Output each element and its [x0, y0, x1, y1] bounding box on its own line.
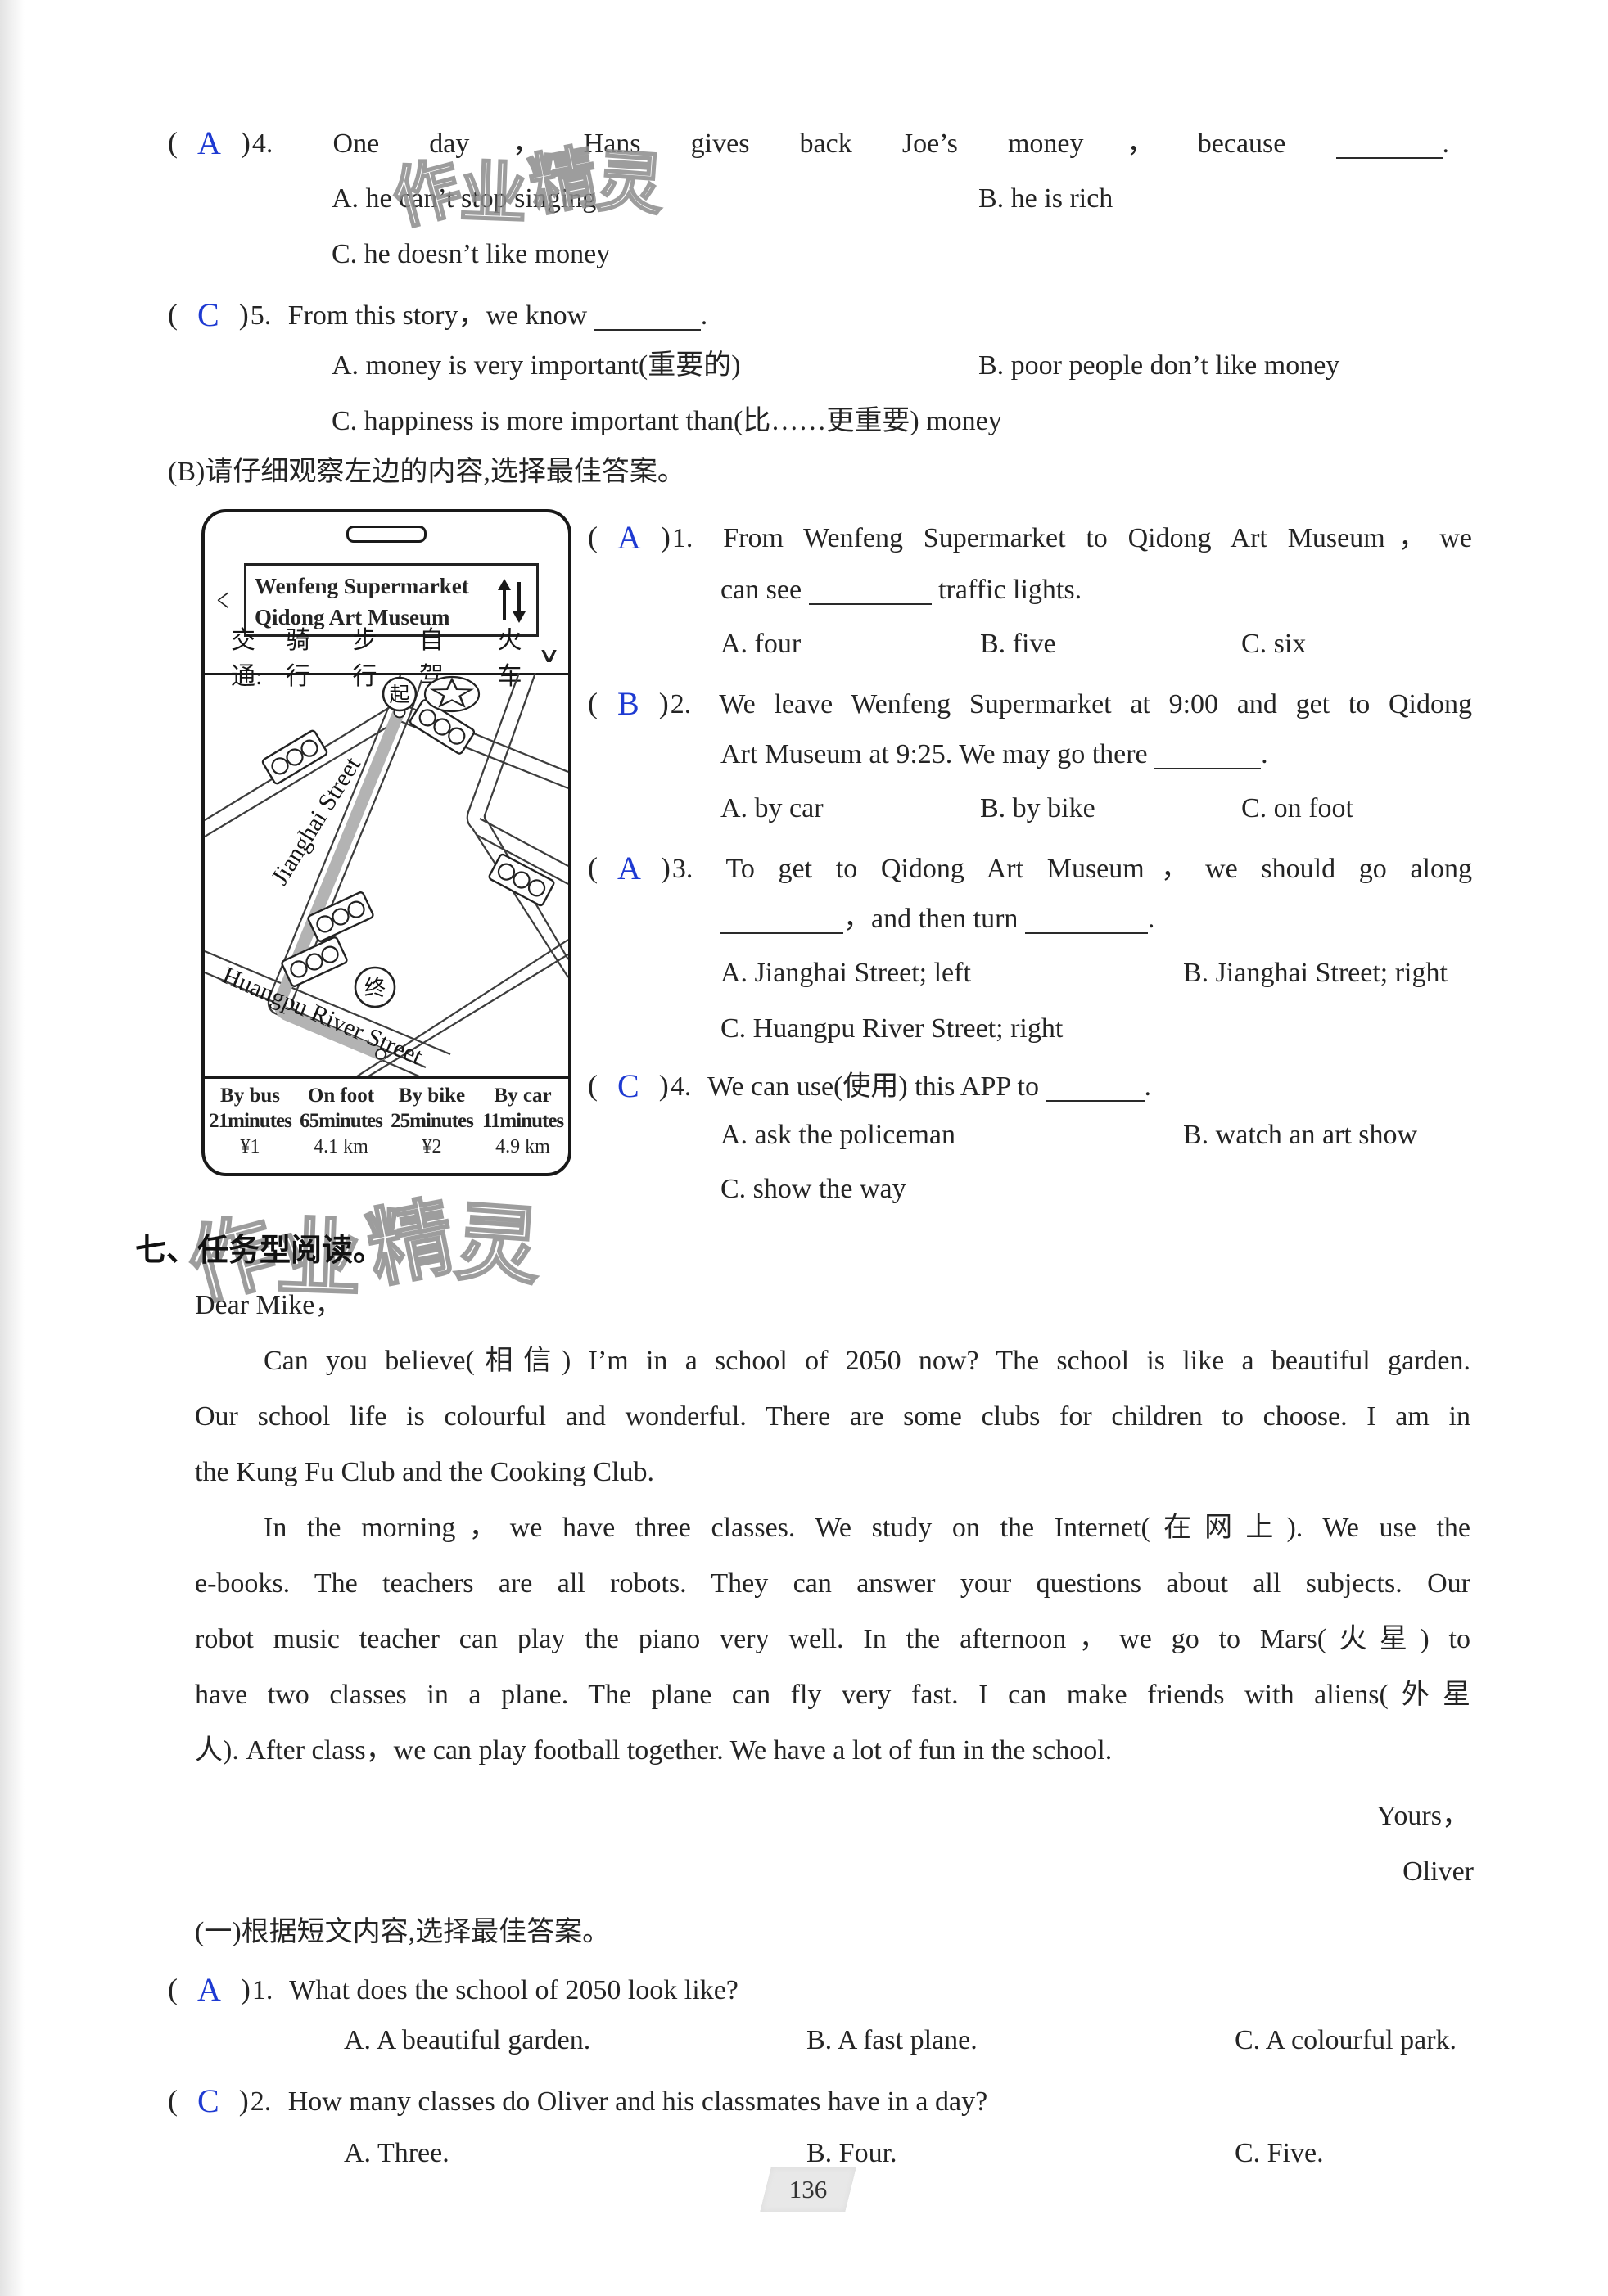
answer-letter: C — [197, 296, 219, 333]
answer-letter: B — [617, 685, 639, 722]
letter-line: Our school life is colourful and wonderf… — [195, 1400, 1470, 1435]
answer-blank — [1046, 1071, 1145, 1102]
letter-line: robot music teacher can play the piano v… — [195, 1622, 1470, 1658]
svg-text:起: 起 — [389, 683, 409, 706]
col-extra: ¥1 — [205, 1136, 296, 1158]
paren-open: ( — [168, 1973, 178, 2005]
option: A. A beautiful garden. — [344, 2023, 590, 2059]
option: C. show the way — [720, 1172, 906, 1207]
question-a5: (C)5. From this story，we know . — [168, 293, 707, 334]
section-7-heading: 七、任务型阅读。 — [135, 1225, 384, 1270]
stem-part: traffic lights. — [938, 575, 1082, 605]
destination-star-icon — [425, 677, 479, 711]
option: A. by car — [720, 792, 824, 827]
swap-route-icon — [494, 575, 530, 626]
option: C. Huangpu River Street; right — [720, 1012, 1063, 1047]
answer-blank — [809, 574, 932, 605]
stem-part: ，and then turn — [843, 904, 1018, 934]
stem-tail: . — [1145, 1071, 1152, 1102]
option: A. four — [720, 627, 801, 662]
question-number: 1. — [672, 523, 693, 553]
table-col-bus: By bus 21minutes ¥1 — [205, 1079, 296, 1175]
stem-tail: . — [1443, 129, 1450, 159]
option: C. A colourful park. — [1235, 2023, 1457, 2059]
col-time: 65minutes — [296, 1110, 386, 1133]
answer-letter: C — [197, 2082, 219, 2119]
question-number: 5. — [251, 300, 272, 331]
start-marker: 起 — [383, 678, 416, 710]
question-number: 2. — [251, 2086, 272, 2117]
question-stem: From Wenfeng Supermarket to Qidong Art M… — [723, 523, 1472, 553]
question-number: 3. — [672, 854, 693, 884]
transport-row: 交通: 骑行 步行 自驾 火车 ∨ — [231, 640, 557, 671]
question-b2-line2: Art Museum at 9:25. We may go there . — [720, 738, 1268, 773]
letter-line: 人). After class，we can play football tog… — [195, 1734, 1112, 1769]
paren-open: ( — [588, 687, 598, 719]
phone-speaker — [346, 526, 427, 543]
answer-letter: C — [617, 1067, 639, 1104]
answer-blank — [720, 903, 843, 934]
letter-line: Can you believe(相信) I’m in a school of 2… — [195, 1344, 1470, 1379]
question-7-2: (C)2. How many classes do Oliver and his… — [168, 2079, 987, 2120]
question-number: 4. — [252, 129, 273, 159]
paren-open: ( — [588, 521, 598, 553]
answer-letter: A — [617, 519, 641, 556]
col-header: By car — [477, 1085, 568, 1107]
table-col-car: By car 11minutes 4.9 km — [477, 1079, 568, 1175]
svg-text:终: 终 — [364, 977, 386, 1000]
table-col-foot: On foot 65minutes 4.1 km — [296, 1079, 386, 1175]
letter-line: e-books. The teachers are all robots. Th… — [195, 1567, 1470, 1602]
col-header: By bike — [386, 1085, 477, 1107]
traffic-light — [262, 729, 328, 784]
question-stem: From this story，we know — [288, 300, 588, 331]
table-col-bike: By bike 25minutes ¥2 — [386, 1079, 477, 1175]
option: B. Four. — [806, 2136, 897, 2172]
col-header: By bus — [205, 1085, 296, 1107]
answer-letter: A — [197, 124, 221, 161]
answer-blank — [1025, 903, 1148, 934]
col-time: 25minutes — [386, 1110, 477, 1133]
question-b3-line2: ，and then turn . — [720, 902, 1154, 937]
question-stem: What does the school of 2050 look like? — [289, 1975, 739, 2005]
col-time: 21minutes — [205, 1110, 296, 1133]
option: C. six — [1241, 627, 1306, 662]
paren-open: ( — [588, 851, 598, 884]
stem-part: can see — [720, 575, 802, 605]
answer-letter: A — [617, 850, 641, 886]
option: A. ask the policeman — [720, 1118, 955, 1153]
option: B. he is rich — [978, 182, 1113, 217]
paren-close: ) — [661, 521, 671, 553]
paren-open: ( — [168, 126, 178, 159]
stem-tail: . — [1148, 904, 1155, 934]
travel-options-table: By bus 21minutes ¥1 On foot 65minutes 4.… — [205, 1076, 568, 1175]
question-stem: To get to Qidong Art Museum，we should go… — [725, 854, 1472, 884]
question-stem: One day，Hans gives back Joe’s money，beca… — [333, 129, 1286, 159]
answer-blank — [1336, 128, 1443, 159]
option: B. Jianghai Street; right — [1183, 956, 1448, 991]
option: C. he doesn’t like money — [332, 237, 610, 273]
chevron-down-icon: ∨ — [537, 643, 561, 668]
col-extra: 4.1 km — [296, 1136, 386, 1158]
letter-line: have two classes in a plane. The plane c… — [195, 1678, 1470, 1713]
part-b-heading: (B)请仔细观察左边的内容,选择最佳答案。 — [168, 455, 685, 490]
question-number: 2. — [671, 689, 692, 719]
question-b1: (A)1. From Wenfeng Supermarket to Qidong… — [588, 516, 1472, 557]
paren-close: ) — [659, 1069, 669, 1102]
paren-close: ) — [241, 126, 251, 159]
paren-close: ) — [239, 2084, 249, 2117]
option: A. he can’t stop singing — [332, 182, 596, 217]
letter-line: the Kung Fu Club and the Cooking Club. — [195, 1455, 654, 1491]
end-marker: 终 — [355, 968, 395, 1007]
letter-signature: Oliver — [819, 1855, 1474, 1890]
option: A. money is very important(重要的) — [332, 349, 741, 384]
question-a4: (A)4. One day，Hans gives back Joe’s mone… — [168, 121, 1449, 162]
answer-blank — [1154, 738, 1261, 769]
paren-close: ) — [241, 1973, 251, 2005]
question-stem: How many classes do Oliver and his class… — [288, 2086, 987, 2117]
watermark-char: 灵 — [451, 1172, 549, 1301]
part-7-sub-heading: (一)根据短文内容,选择最佳答案。 — [195, 1915, 610, 1951]
workbook-page: (A)4. One day，Hans gives back Joe’s mone… — [0, 0, 1608, 2296]
phone-illustration: < Wenfeng Supermarket Qidong Art Museum … — [201, 509, 571, 1176]
option: B. by bike — [980, 792, 1095, 827]
letter-closing: Yours， — [819, 1799, 1470, 1834]
option: C. Five. — [1235, 2136, 1324, 2172]
answer-blank — [594, 300, 701, 331]
option: A. Three. — [344, 2136, 449, 2172]
option: A. Jianghai Street; left — [720, 956, 971, 991]
option: B. watch an art show — [1183, 1118, 1417, 1153]
question-7-1: (A)1. What does the school of 2050 look … — [168, 1968, 739, 2009]
question-b3: (A)3. To get to Qidong Art Museum，we sho… — [588, 846, 1472, 887]
page-number: 136 — [766, 2167, 851, 2212]
paren-open: ( — [168, 2084, 178, 2117]
route-origin: Wenfeng Supermarket — [255, 571, 528, 602]
stem-tail: . — [701, 300, 708, 331]
option: B. five — [980, 627, 1056, 662]
question-stem: We leave Wenfeng Supermarket at 9:00 and… — [719, 689, 1472, 719]
scan-left-edge — [0, 0, 25, 2296]
page-number-badge: 136 — [760, 2167, 856, 2212]
paren-close: ) — [661, 851, 671, 884]
col-extra: 4.9 km — [477, 1136, 568, 1158]
traffic-light — [488, 854, 554, 907]
option: C. happiness is more important than(比……更… — [332, 404, 1002, 440]
stem-tail: . — [1261, 739, 1268, 769]
paren-close: ) — [659, 687, 669, 719]
back-icon: < — [217, 580, 229, 620]
stem-part: Art Museum at 9:25. We may go there — [720, 739, 1148, 769]
question-number: 4. — [671, 1071, 692, 1102]
answer-letter: A — [197, 1971, 221, 2008]
map: 起 终 Jianghai Street Huangpu River Street — [205, 673, 568, 1076]
col-extra: ¥2 — [386, 1136, 477, 1158]
paren-open: ( — [588, 1069, 598, 1102]
question-number: 1. — [252, 1975, 273, 2005]
option: C. on foot — [1241, 792, 1353, 827]
option: B. A fast plane. — [806, 2023, 978, 2059]
question-b2: (B)2. We leave Wenfeng Supermarket at 9:… — [588, 682, 1472, 723]
col-header: On foot — [296, 1085, 386, 1107]
question-b1-line2: can see traffic lights. — [720, 573, 1082, 608]
letter-salutation: Dear Mike， — [195, 1288, 342, 1324]
question-b4: (C)4. We can use(使用) this APP to . — [588, 1064, 1151, 1105]
question-stem: We can use(使用) this APP to — [707, 1071, 1039, 1102]
paren-close: ) — [239, 298, 249, 331]
option: B. poor people don’t like money — [978, 349, 1339, 384]
letter-line: In the morning，we have three classes. We… — [195, 1511, 1470, 1546]
street-label-huangpu: Huangpu River Street — [219, 962, 427, 1071]
paren-open: ( — [168, 298, 178, 331]
col-time: 11minutes — [477, 1110, 568, 1133]
